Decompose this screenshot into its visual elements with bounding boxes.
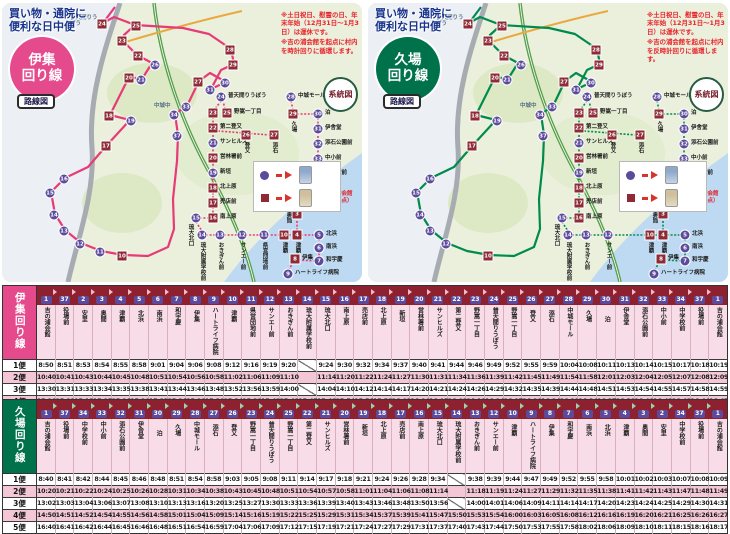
stop-number-chip: 3 xyxy=(638,410,649,418)
diagram-stop-label: 北上原 xyxy=(586,185,603,191)
time-cell: 16:42 xyxy=(74,522,93,534)
stop-number-cell: 5 xyxy=(130,286,149,306)
map-panel-iju-loop: 買い物・通院に 便利な日中便 伊集 回り線 路線図 ※土日祝日、慰霊の日、年末年… xyxy=(2,3,362,282)
stop-name: 第二登又 xyxy=(453,307,460,331)
stop-number-cell: 16 xyxy=(410,400,429,420)
time-cell: 13:48 xyxy=(205,384,224,396)
stop-number-chip: 1 xyxy=(41,410,52,418)
stop-name-cell: 吉の浦会館 xyxy=(37,305,56,360)
stop-number-cell: 23 xyxy=(242,400,261,420)
time-cell: 10:43 xyxy=(223,486,242,498)
stop-name: おきぎん前 xyxy=(472,421,479,451)
stop-number-cell: 37 xyxy=(55,286,74,306)
stop-number-cell: 1 xyxy=(37,400,56,420)
time-cell: 11:18 xyxy=(466,486,485,498)
time-cell: 10:51 xyxy=(149,372,168,384)
stop-number-chip: 22 xyxy=(302,410,313,418)
stop-number-chip: 28 xyxy=(190,410,201,418)
time-cell: 9:58 xyxy=(597,474,616,486)
route-direction-arrow-icon xyxy=(203,289,207,295)
stop-number-chip: 37 xyxy=(694,296,705,304)
stop-name: 新垣 xyxy=(397,310,404,322)
line-name: 久場回り線 xyxy=(14,406,25,464)
time-cell: 16:44 xyxy=(93,522,112,534)
diagram-stop-label: 新垣 xyxy=(220,170,231,176)
time-cell: 10:15 xyxy=(653,360,672,372)
time-cell: 8:45 xyxy=(111,474,130,486)
time-cell: 17:53 xyxy=(522,522,541,534)
time-cell: 12:07 xyxy=(671,372,690,384)
diagram-stop-node: 26 xyxy=(607,130,618,141)
stop-name-cell: おきぎん前 xyxy=(279,305,298,360)
stop-number-cell: 14 xyxy=(298,286,317,306)
stop-number-chip: 20 xyxy=(414,296,425,304)
purple-circle-stop-icon xyxy=(260,171,269,180)
map-stop-marker: 10 xyxy=(117,251,128,262)
diagram-stop-node: 5 xyxy=(314,230,325,241)
map-stop-marker: 22 xyxy=(499,51,510,62)
time-cell: 11:42 xyxy=(503,372,522,384)
time-cell: 10:57 xyxy=(317,486,336,498)
diagram-stop-node: 22 xyxy=(574,123,585,134)
stop-number-chip: 7 xyxy=(171,296,182,304)
time-cell: 14:55 xyxy=(653,384,672,396)
tagline: 買い物・通院に 便利な日中便 xyxy=(375,8,452,34)
map-stop-marker: 14 xyxy=(415,210,426,221)
diagram-stop-node: 18 xyxy=(574,183,585,194)
diagram-stop-label: 琉大附属学校前 xyxy=(565,242,571,281)
stop-name-cell: 添石 xyxy=(205,419,224,474)
stop-name: 久場 xyxy=(584,310,591,322)
time-cell: 10:13 xyxy=(615,360,634,372)
stop-name: 役場前 xyxy=(61,421,68,439)
map-stop-marker: 34 xyxy=(535,110,546,121)
stop-name: 野嵩一丁目 xyxy=(285,421,292,451)
stop-number-chip: 27 xyxy=(544,296,555,304)
time-cell: 14:25 xyxy=(653,498,672,510)
time-cell: 18:09 xyxy=(615,522,634,534)
stop-name-cell: 安里 xyxy=(74,305,93,360)
route-direction-arrow-icon xyxy=(296,403,300,409)
route-direction-arrow-icon xyxy=(576,403,580,409)
time-cell: 10:45 xyxy=(111,372,130,384)
time-cell: 17:50 xyxy=(503,522,522,534)
service-note-holidays: ※土日祝日、慰霊の日、年末年始（12月31日～1月3日）は運休です。 xyxy=(281,11,359,36)
stop-name-cell: 営林署前 xyxy=(410,305,429,360)
diagram-stop-label: 津覇 xyxy=(294,242,300,253)
route-direction-arrow-icon xyxy=(483,403,487,409)
diagram-stop-label: 第二登又 xyxy=(586,125,608,131)
stop-name: 普天間りうぼう xyxy=(267,421,274,463)
time-cell: 9:05 xyxy=(242,474,261,486)
route-direction-arrow-icon xyxy=(109,289,113,295)
stop-name-cell: 久場 xyxy=(167,419,186,474)
route-direction-arrow-icon xyxy=(184,403,188,409)
time-cell: 11:43 xyxy=(653,486,672,498)
time-cell: 9:39 xyxy=(485,474,504,486)
stop-name-cell: 津覇 xyxy=(615,419,634,474)
diagram-stop-node: 7 xyxy=(680,256,691,267)
diagram-stop-node: 27 xyxy=(269,130,280,141)
route-direction-arrow-icon xyxy=(389,403,393,409)
stop-name-cell: 琉大附属学校前 xyxy=(447,419,466,474)
diagram-stop-label: 野嵩一丁目 xyxy=(234,110,262,116)
time-cell: 17:43 xyxy=(466,522,485,534)
stop-number-chip: 8 xyxy=(544,410,555,418)
route-direction-arrow-icon xyxy=(613,289,617,295)
diagram-stop-label: 南上原 xyxy=(586,215,603,221)
no-service-cell xyxy=(298,384,317,396)
stop-name: 安里 xyxy=(659,424,666,436)
time-cell: 13:25 xyxy=(223,498,242,510)
route-direction-arrow-icon xyxy=(539,289,543,295)
time-cell: 10:07 xyxy=(671,474,690,486)
time-cell: 11:30 xyxy=(410,372,429,384)
map-stop-marker: 21 xyxy=(502,75,513,86)
diagram-stop-label: 添石公園前 xyxy=(691,141,719,147)
time-cell: 17:06 xyxy=(242,522,261,534)
time-cell: 14:01 xyxy=(485,498,504,510)
time-cell: 9:37 xyxy=(391,360,410,372)
stop-number-cell: 16 xyxy=(335,286,354,306)
diagram-stop-label: 新垣 xyxy=(586,170,597,176)
stop-number-cell: 34 xyxy=(74,400,93,420)
time-cell: 10:44 xyxy=(93,372,112,384)
stop-name-cell: ハートライフ病院 xyxy=(205,305,224,360)
stop-name: サンエー前 xyxy=(267,307,274,337)
red-arrow-icon xyxy=(642,174,648,177)
diagram-stop-label: 添石 xyxy=(637,142,643,153)
time-cell: 14:04 xyxy=(317,384,336,396)
stop-number-chip: 3 xyxy=(96,296,107,304)
stop-number-chip: 33 xyxy=(96,410,107,418)
diagram-stop-label: 和宇慶 xyxy=(326,258,343,264)
stop-name: 添石 xyxy=(547,310,554,322)
route-direction-arrow-icon xyxy=(165,403,169,409)
route-direction-arrow-icon xyxy=(109,403,113,409)
time-cell: 10:04 xyxy=(559,360,578,372)
time-cell: 10:17 xyxy=(671,360,690,372)
stop-name: 南上原 xyxy=(341,307,348,325)
stop-name: 役場前 xyxy=(696,307,703,325)
stop-name: 北上原 xyxy=(379,307,386,325)
route-direction-arrow-icon xyxy=(464,403,468,409)
time-cell: 10:11 xyxy=(597,360,616,372)
route-direction-arrow-icon xyxy=(520,289,524,295)
time-cell: 9:12 xyxy=(223,360,242,372)
time-cell: 9:03 xyxy=(223,474,242,486)
line-badge-title2: 回り線 xyxy=(22,69,63,85)
time-cell: 13:02 xyxy=(37,498,56,510)
stop-number-cell: 24 xyxy=(485,286,504,306)
time-cell: 8:54 xyxy=(186,474,205,486)
route-direction-arrow-icon xyxy=(427,289,431,295)
stop-name-cell: 第二登又 xyxy=(447,305,466,360)
diagram-stop-label: サンエー前 xyxy=(605,242,611,270)
time-cell: 11:29 xyxy=(541,486,560,498)
time-cell: 16:48 xyxy=(149,522,168,534)
stop-number-cell: 25 xyxy=(279,400,298,420)
stop-name-cell: 南上原 xyxy=(410,419,429,474)
diagram-stop-label: 奥間 xyxy=(651,212,657,223)
time-cell: 13:06 xyxy=(93,498,112,510)
time-cell: 13:50 xyxy=(410,498,429,510)
stop-number-cell: 21 xyxy=(429,286,448,306)
stop-number-chip: 4 xyxy=(115,296,126,304)
stop-name: 役場前 xyxy=(696,421,703,439)
time-cell: 9:49 xyxy=(541,474,560,486)
time-cell: 14:17 xyxy=(578,498,597,510)
diagram-stop-label: 和宇慶 xyxy=(692,258,709,264)
time-cell: 14:09 xyxy=(522,498,541,510)
time-cell: 13:10 xyxy=(149,498,168,510)
stop-name-cell: 野嵩一丁目 xyxy=(466,305,485,360)
route-direction-arrow-icon xyxy=(333,289,337,295)
diagram-stop-node: 20 xyxy=(208,153,219,164)
diagram-stop-label: 北上原 xyxy=(220,185,237,191)
stop-name: 北浜 xyxy=(603,424,610,436)
time-cell: 14:20 xyxy=(597,498,616,510)
diagram-stop-node: 32 xyxy=(313,139,324,150)
time-cell: 17:29 xyxy=(391,522,410,534)
route-direction-arrow-icon xyxy=(259,403,263,409)
time-cell: 11:54 xyxy=(559,372,578,384)
route-direction-arrow-icon xyxy=(389,289,393,295)
time-cell: 16:51 xyxy=(167,522,186,534)
diagram-stop-node: 27 xyxy=(635,130,646,141)
map-area-label: 中城中 xyxy=(520,103,548,109)
route-direction-arrow-icon xyxy=(221,289,225,295)
time-cell: 10:43 xyxy=(74,372,93,384)
diagram-stop-label: 津覇 xyxy=(647,242,653,253)
diagram-stop-node: 8 xyxy=(656,254,667,265)
stop-number-cell: 1 xyxy=(709,286,728,306)
time-cell: 13:13 xyxy=(167,498,186,510)
route-direction-arrow-icon xyxy=(464,289,468,295)
route-direction-arrow-icon xyxy=(445,403,449,409)
time-cell: 14:12 xyxy=(354,384,373,396)
stop-number-chip: 23 xyxy=(246,410,257,418)
time-cell: 9:34 xyxy=(373,360,392,372)
stop-name-cell: 北上原 xyxy=(373,419,392,474)
stop-number-cell: 18 xyxy=(373,400,392,420)
stop-number-chip: 27 xyxy=(208,410,219,418)
time-cell: 14:39 xyxy=(541,384,560,396)
diagram-stop-node: 20 xyxy=(574,153,585,164)
stop-number-chip: 22 xyxy=(451,296,462,304)
red-arrow-head-icon xyxy=(651,194,658,202)
time-cell: 8:44 xyxy=(93,474,112,486)
route-direction-arrow-icon xyxy=(371,403,375,409)
stop-name-cell: 琉大附属学校前 xyxy=(298,305,317,360)
time-cell: 17:37 xyxy=(429,522,448,534)
time-cell: 13:20 xyxy=(205,498,224,510)
diagram-stop-node: 26 xyxy=(241,130,252,141)
time-cell: 13:46 xyxy=(186,384,205,396)
time-cell: 10:41 xyxy=(55,372,74,384)
stop-number-cell: 26 xyxy=(223,400,242,420)
stop-name-cell: 中城モール xyxy=(186,419,205,474)
route-direction-arrow-icon xyxy=(408,403,412,409)
diagram-stop-label: 売店前 xyxy=(586,200,603,206)
diagram-stop-label: 久場 xyxy=(656,121,662,132)
stop-number-cell: 33 xyxy=(653,286,672,306)
route-direction-arrow-icon xyxy=(557,289,561,295)
stop-number-cell: 30 xyxy=(149,400,168,420)
route-direction-arrow-icon xyxy=(147,403,151,409)
time-cell: 9:49 xyxy=(485,360,504,372)
diagram-stop-node: 19 xyxy=(574,168,585,179)
stop-number-chip: 5 xyxy=(134,296,145,304)
diagram-stop-node: 31 xyxy=(313,124,324,135)
stop-name-cell: 琉大北口 xyxy=(429,419,448,474)
stop-number-chip: 25 xyxy=(283,410,294,418)
route-direction-arrow-icon xyxy=(445,289,449,295)
diagram-stop-label: 伊集 xyxy=(668,256,679,262)
time-cell: 11:10 xyxy=(279,372,298,384)
stop-name-cell: サンヒルズ xyxy=(429,305,448,360)
diagram-stop-label: 中城モール xyxy=(298,94,326,100)
stop-number-cell: 27 xyxy=(205,400,224,420)
time-cell: 11:36 xyxy=(466,372,485,384)
diagram-stop-label: 登又 xyxy=(243,142,249,153)
stop-number-chip: 6 xyxy=(152,296,163,304)
time-cell: 17:31 xyxy=(410,522,429,534)
time-cell: 14:00 xyxy=(466,498,485,510)
time-cell: 8:55 xyxy=(111,360,130,372)
time-cell: 11:41 xyxy=(615,486,634,498)
stop-number-chip: 1 xyxy=(712,410,723,418)
diagram-stop-node: 12 xyxy=(237,230,248,241)
time-cell: 9:41 xyxy=(429,360,448,372)
time-cell: 11:34 xyxy=(447,372,466,384)
route-direction-arrow-icon xyxy=(333,403,337,409)
stop-number-cell: 6 xyxy=(578,400,597,420)
diagram-stop-label: 県営団地前 xyxy=(261,242,267,270)
route-direction-arrow-icon xyxy=(576,289,580,295)
stop-name-cell: ハートライフ病院 xyxy=(522,419,541,474)
time-cell: 8:41 xyxy=(55,474,74,486)
diagram-stop-node: 16 xyxy=(574,213,585,224)
stop-number-chip: 13 xyxy=(470,410,481,418)
time-cell: 13:41 xyxy=(149,384,168,396)
stop-number-cell: 1 xyxy=(709,400,728,420)
time-cell: 9:21 xyxy=(354,474,373,486)
time-cell: 8:48 xyxy=(149,474,168,486)
time-cell: 10:58 xyxy=(335,486,354,498)
route-direction-arrow-icon xyxy=(520,403,524,409)
maroon-square-stop-icon xyxy=(261,194,269,202)
time-cell: 8:53 xyxy=(74,360,93,372)
stop-number-cell: 13 xyxy=(279,286,298,306)
red-arrow-head-icon xyxy=(651,171,658,179)
stop-name: 北上原 xyxy=(379,421,386,439)
map-stop-marker: 15 xyxy=(411,188,422,199)
stop-number-cell: 21 xyxy=(317,400,336,420)
bus-stop-legend xyxy=(253,161,341,212)
time-cell: 10:08 xyxy=(578,360,597,372)
route-direction-arrow-icon xyxy=(221,403,225,409)
stop-name: 津覇 xyxy=(509,424,516,436)
stop-number-cell: 11 xyxy=(242,286,261,306)
stop-name: 県営団地前 xyxy=(248,307,255,337)
stop-name-cell: 売店前 xyxy=(354,305,373,360)
time-cell: 17:09 xyxy=(261,522,280,534)
diagram-stop-node: 15 xyxy=(557,213,568,224)
stop-number-chip: 21 xyxy=(320,410,331,418)
stop-name: 中小前 xyxy=(99,421,106,439)
tagline: 買い物・通院に 便利な日中便 xyxy=(9,8,86,34)
stop-number-chip: 19 xyxy=(395,296,406,304)
time-cell: 14:54 xyxy=(634,384,653,396)
diagram-stop-node: 13 xyxy=(215,230,226,241)
stop-name-cell: 野嵩一丁目 xyxy=(503,305,522,360)
stop-number-chip: 24 xyxy=(488,296,499,304)
time-cell: 12:01 xyxy=(597,372,616,384)
stop-number-chip: 16 xyxy=(339,296,350,304)
stop-number-chip: 26 xyxy=(526,296,537,304)
stop-number-chip: 15 xyxy=(432,410,443,418)
red-arrow-icon xyxy=(276,197,282,200)
time-cell: 14:00 xyxy=(279,384,298,396)
time-cell: 18:16 xyxy=(690,522,709,534)
stop-number-cell: 8 xyxy=(186,286,205,306)
service-note-loop: ※吉の浦会館を起点に村内を反時計回りに循環します。 xyxy=(647,38,725,63)
stop-number-cell: 22 xyxy=(447,286,466,306)
trip-label: 2便 xyxy=(3,486,37,498)
route-direction-arrow-icon xyxy=(669,289,673,295)
line-badge-title2: 回り線 xyxy=(388,69,429,85)
time-cell: 18:15 xyxy=(671,522,690,534)
time-cell: 13:39 xyxy=(317,498,336,510)
time-cell: 18:02 xyxy=(578,522,597,534)
time-cell: 14:51 xyxy=(597,384,616,396)
stop-name-cell: 南浜 xyxy=(149,305,168,360)
stop-name: 南浜 xyxy=(155,310,162,322)
time-cell: 17:44 xyxy=(485,522,504,534)
stop-number-chip: 37 xyxy=(59,410,70,418)
stop-name: 新垣 xyxy=(360,424,367,436)
stop-name-cell: 中城モール xyxy=(559,305,578,360)
stop-number-cell: 37 xyxy=(690,400,709,420)
stop-name-cell: 泊 xyxy=(149,419,168,474)
stop-name-cell: 北浜 xyxy=(130,305,149,360)
stop-number-chip: 18 xyxy=(376,410,387,418)
stop-number-cell: 15 xyxy=(429,400,448,420)
time-cell: 8:51 xyxy=(55,360,74,372)
time-cell: 17:15 xyxy=(298,522,317,534)
time-cell: 13:46 xyxy=(373,498,392,510)
time-cell: 9:44 xyxy=(447,360,466,372)
map-stop-marker: 16 xyxy=(59,174,70,185)
time-cell: 9:38 xyxy=(466,474,485,486)
stop-name: 添石 xyxy=(211,424,218,436)
time-cell: 17:27 xyxy=(373,522,392,534)
diagram-stop-label: ハートライフ病院 xyxy=(295,271,339,277)
stop-name: 津覇 xyxy=(229,310,236,322)
stop-number-chip: 12 xyxy=(264,296,275,304)
stop-name: 北浜 xyxy=(136,310,143,322)
time-cell: 13:48 xyxy=(391,498,410,510)
route-direction-arrow-icon xyxy=(277,289,281,295)
route-direction-arrow-icon xyxy=(707,403,711,409)
diagram-stop-label: 添石 xyxy=(271,142,277,153)
diagram-stop-node: 14 xyxy=(197,230,208,241)
time-cell: 9:24 xyxy=(373,474,392,486)
stop-name-cell: 役場前 xyxy=(690,419,709,474)
time-cell: 9:17 xyxy=(317,474,336,486)
diagram-stop-node: 30 xyxy=(679,109,690,120)
